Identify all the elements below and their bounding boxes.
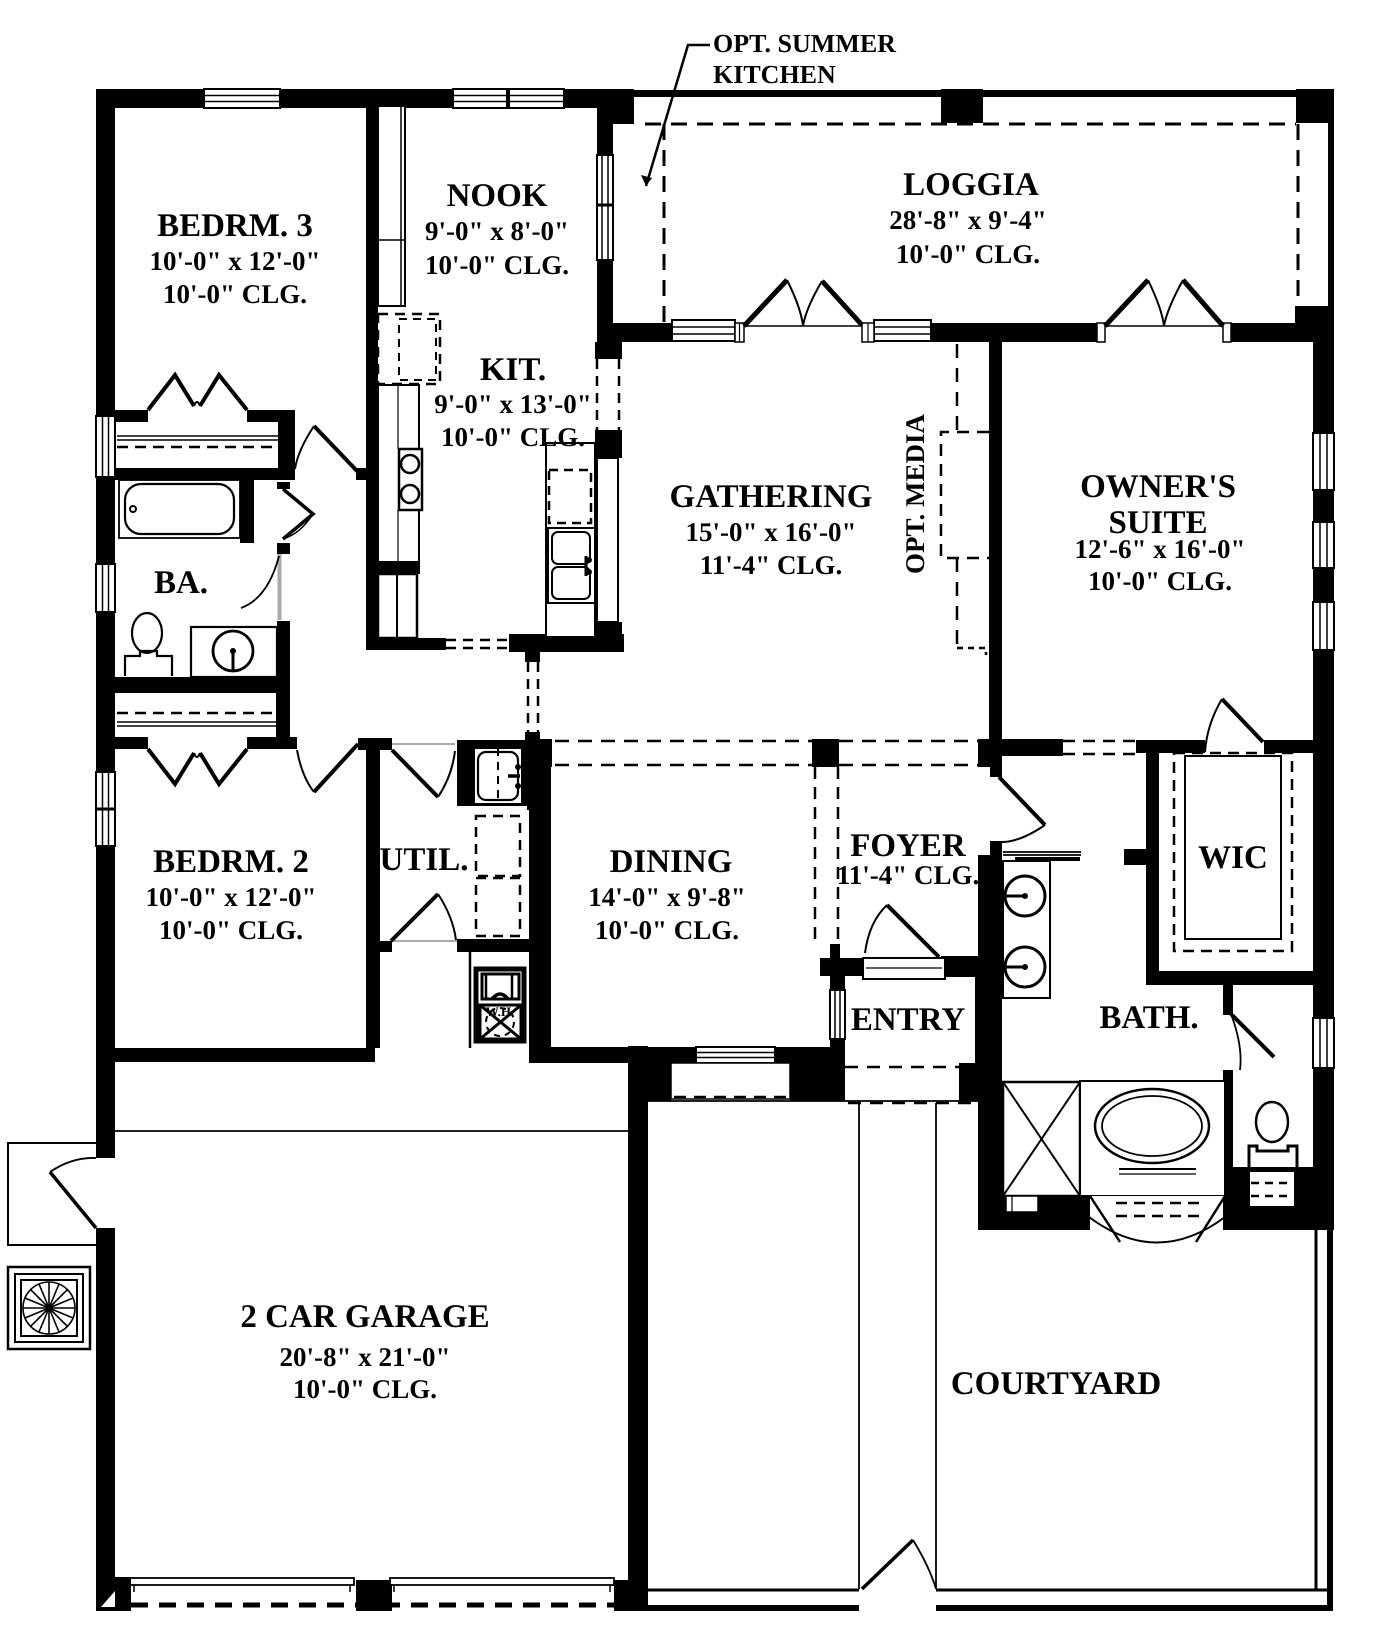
svg-text:UTIL.: UTIL. xyxy=(380,842,469,878)
svg-text:WIC: WIC xyxy=(1198,840,1268,876)
svg-text:10'-0" CLG.: 10'-0" CLG. xyxy=(159,915,303,945)
svg-text:OPT. MEDIA: OPT. MEDIA xyxy=(900,414,930,574)
svg-text:10'-0" CLG.: 10'-0" CLG. xyxy=(293,1374,437,1404)
svg-text:9'-0" x 8'-0": 9'-0" x 8'-0" xyxy=(425,216,569,246)
svg-text:10'-0" x 12'-0": 10'-0" x 12'-0" xyxy=(150,246,321,276)
svg-text:10'-0" x 12'-0": 10'-0" x 12'-0" xyxy=(146,882,317,912)
svg-text:BATH.: BATH. xyxy=(1099,1000,1198,1036)
svg-text:9'-0" x 13'-0": 9'-0" x 13'-0" xyxy=(434,389,591,419)
svg-text:2 CAR GARAGE: 2 CAR GARAGE xyxy=(240,1299,489,1335)
svg-text:LOGGIA: LOGGIA xyxy=(903,167,1039,203)
svg-text:12'-6" x 16'-0": 12'-6" x 16'-0" xyxy=(1075,534,1246,564)
svg-text:10'-0" CLG.: 10'-0" CLG. xyxy=(163,279,307,309)
svg-text:KIT.: KIT. xyxy=(480,352,546,388)
svg-text:DINING: DINING xyxy=(610,844,733,880)
svg-text:BEDRM. 2: BEDRM. 2 xyxy=(153,844,309,880)
svg-text:28'-8" x 9'-4": 28'-8" x 9'-4" xyxy=(889,205,1046,235)
svg-text:BA.: BA. xyxy=(154,565,208,601)
svg-text:FOYER: FOYER xyxy=(850,828,967,864)
svg-text:11'-4" CLG.: 11'-4" CLG. xyxy=(700,550,843,580)
svg-text:10'-0" CLG.: 10'-0" CLG. xyxy=(441,422,585,452)
svg-text:ENTRY: ENTRY xyxy=(851,1002,966,1038)
svg-text:11'-4" CLG.: 11'-4" CLG. xyxy=(837,860,980,890)
svg-text:W.H.: W.H. xyxy=(486,1004,514,1019)
svg-text:COURTYARD: COURTYARD xyxy=(951,1366,1161,1402)
svg-text:14'-0" x 9'-8": 14'-0" x 9'-8" xyxy=(588,882,745,912)
svg-text:15'-0" x 16'-0": 15'-0" x 16'-0" xyxy=(686,517,857,547)
svg-text:10'-0" CLG.: 10'-0" CLG. xyxy=(1088,566,1232,596)
svg-text:10'-0" CLG.: 10'-0" CLG. xyxy=(595,915,739,945)
svg-text:20'-8" x 21'-0": 20'-8" x 21'-0" xyxy=(280,1342,451,1372)
svg-text:GATHERING: GATHERING xyxy=(670,479,873,515)
svg-text:OWNER'S: OWNER'S xyxy=(1080,469,1236,505)
svg-text:10'-0" CLG.: 10'-0" CLG. xyxy=(425,250,569,280)
svg-text:KITCHEN: KITCHEN xyxy=(713,60,836,89)
svg-text:NOOK: NOOK xyxy=(447,178,548,214)
svg-text:BEDRM. 3: BEDRM. 3 xyxy=(157,208,313,244)
svg-text:OPT. SUMMER: OPT. SUMMER xyxy=(713,29,896,58)
svg-text:10'-0" CLG.: 10'-0" CLG. xyxy=(896,239,1040,269)
